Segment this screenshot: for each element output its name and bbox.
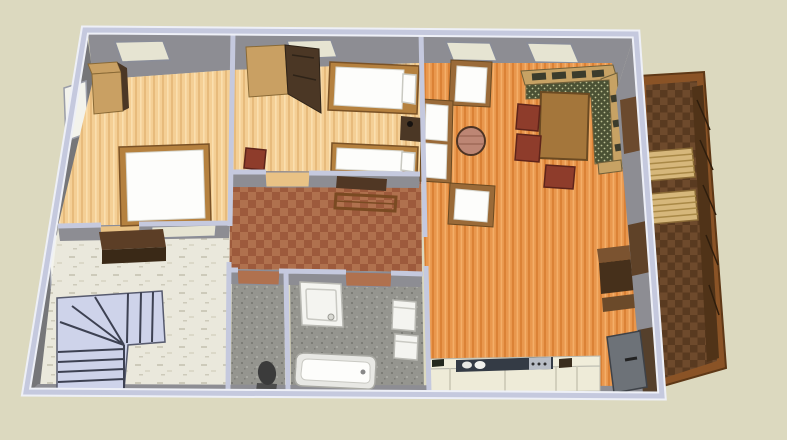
entry-door-leaf xyxy=(607,331,647,393)
washbasin-edge xyxy=(393,307,415,309)
corner-sofa-arm xyxy=(601,73,623,171)
bedroom2-floor xyxy=(229,63,421,172)
counter-item-right xyxy=(559,358,572,368)
stair-hall-floor xyxy=(40,223,230,386)
paper-background xyxy=(0,0,787,440)
wc-floor xyxy=(231,273,285,386)
stair-hall xyxy=(57,229,166,392)
corner-sofa-back-slats xyxy=(532,73,604,77)
washbasin xyxy=(392,300,416,331)
skylight-window-bedroom2 xyxy=(287,40,337,59)
skylight-window-living-1 xyxy=(446,42,497,61)
toilet-icon xyxy=(256,360,277,386)
outer-wall-highlight xyxy=(26,30,662,396)
double-bed-mattress xyxy=(126,150,205,221)
kitchen-sink-bowl-1 xyxy=(462,362,472,369)
washing-machine-panel xyxy=(395,341,417,343)
skylight-window-living-2 xyxy=(527,43,579,63)
washing-machine xyxy=(394,334,418,360)
east-cabinet-top xyxy=(597,245,633,263)
stair-hall-wall-window xyxy=(151,225,216,238)
dining-chair-3 xyxy=(544,165,575,189)
window-stair-hall xyxy=(49,229,75,288)
nightstand xyxy=(400,116,422,142)
balcony-floor xyxy=(646,81,717,381)
west-wall-face xyxy=(27,34,94,391)
kitchen-worktop-dark xyxy=(456,357,553,372)
hall-bench-rail xyxy=(336,201,395,204)
living-room-floor xyxy=(419,63,642,390)
bedroom2-wardrobe-front xyxy=(285,45,321,113)
east-wall-window-2 xyxy=(628,221,650,276)
stair-hall-north-wall-face xyxy=(58,223,230,241)
doorway-hallway-bedroom2 xyxy=(265,172,310,187)
shower-tray xyxy=(300,282,343,327)
south-wall-face xyxy=(30,384,646,394)
north-wall-face xyxy=(88,33,634,92)
kitchen-counter-front xyxy=(428,366,600,393)
bedroom1 xyxy=(88,62,211,226)
balcony-bench-2-slats xyxy=(650,196,698,218)
nightstand-item xyxy=(407,121,413,127)
interior-walls xyxy=(58,31,429,392)
kitchen-cabinet-seams xyxy=(450,366,577,391)
bedroom1-wardrobe-front xyxy=(92,72,123,114)
single-bed-b-pillow xyxy=(401,152,415,172)
bedroom1-wardrobe-side xyxy=(117,62,129,111)
single-bed-b-frame xyxy=(331,143,418,175)
toilet-tank xyxy=(256,383,277,392)
bathtub xyxy=(295,353,376,389)
bathroom-floor xyxy=(290,274,424,386)
round-table xyxy=(457,127,485,155)
balcony-fence-icon xyxy=(692,85,719,362)
living-room xyxy=(420,60,635,393)
outer-wall xyxy=(26,30,662,396)
desk-top xyxy=(99,229,166,250)
bedroom1-wardrobe-top xyxy=(88,62,121,74)
bathtub-drain xyxy=(361,370,366,375)
loveseat-frame xyxy=(420,99,453,183)
hall-bench xyxy=(335,194,396,211)
kitchen-counter-top xyxy=(428,356,600,369)
east-wall-door-opening xyxy=(638,326,662,394)
counter-item-left xyxy=(432,359,444,367)
balcony-bench-1 xyxy=(645,148,695,181)
hallway-floor xyxy=(228,171,422,272)
balcony-fence-braces xyxy=(697,100,719,315)
corner-sofa-arm-slats xyxy=(611,97,627,148)
corner-sofa-seat xyxy=(526,80,613,164)
east-wall xyxy=(607,36,662,396)
east-shelf xyxy=(602,294,635,312)
stove-icon xyxy=(529,357,551,370)
outer-wall-top xyxy=(26,30,662,396)
hall-wall-shelf xyxy=(336,176,387,191)
apartment-interior xyxy=(27,33,646,394)
hallway-north-wall-face xyxy=(229,171,421,188)
dining-chair-2 xyxy=(515,134,541,162)
window-bedroom1 xyxy=(64,81,88,141)
winder-staircase xyxy=(57,291,165,392)
loveseat-cushion-1 xyxy=(425,104,448,141)
east-wall-face xyxy=(616,36,662,396)
single-bed-b-mattress xyxy=(336,148,403,172)
loveseat-cushion-2 xyxy=(424,143,447,179)
double-bed-frame xyxy=(119,144,211,226)
armchair-top-cushion xyxy=(455,66,487,103)
balcony-railing-frame xyxy=(638,72,726,390)
single-bed-a-mattress xyxy=(334,67,404,109)
skylight-window-bedroom1 xyxy=(115,41,170,62)
bathroom xyxy=(295,282,418,389)
dining-chair-1 xyxy=(516,104,540,131)
dining-table xyxy=(539,92,589,160)
single-bed-a-pillow xyxy=(402,74,416,104)
kitchen-sink-bowl-2 xyxy=(475,361,486,369)
bathtub-inner xyxy=(301,359,370,383)
wc xyxy=(256,360,278,392)
desk-front xyxy=(102,247,166,264)
armchair-bottom-cushion xyxy=(454,189,489,222)
balcony-bench-1-slats xyxy=(646,154,695,176)
bedroom2 xyxy=(244,45,422,175)
staircase-step-lines xyxy=(58,292,153,390)
bedroom2-chair xyxy=(244,148,266,170)
hallway xyxy=(335,176,396,211)
bedroom2-wardrobe-side xyxy=(246,45,288,97)
corner-sofa-back xyxy=(521,65,617,85)
door-handle-icon xyxy=(625,358,637,360)
bedroom2-wardrobe-panels xyxy=(292,55,316,80)
balcony xyxy=(638,72,726,390)
bath-north-wall-face xyxy=(228,269,422,287)
east-wall-window-1 xyxy=(620,96,642,154)
single-bed-a-frame xyxy=(328,62,419,114)
balcony-bench-2 xyxy=(649,190,698,224)
doorway-bathroom xyxy=(345,272,392,287)
shower-tray-inner xyxy=(306,289,337,321)
floor-plan-3d-render xyxy=(0,0,787,440)
round-table-grain xyxy=(458,136,484,144)
east-cabinet-front xyxy=(599,259,635,294)
shower-drain xyxy=(328,314,334,320)
armchair-top-frame xyxy=(449,60,492,107)
bedroom1-floor xyxy=(58,70,231,226)
doorway-wc xyxy=(237,270,280,285)
corner-sofa-arm-end xyxy=(598,160,622,174)
armchair-bottom-frame xyxy=(448,183,495,227)
doorway-bedroom1-stair-hall xyxy=(100,225,140,240)
interior-wall-top-lines xyxy=(58,31,429,392)
